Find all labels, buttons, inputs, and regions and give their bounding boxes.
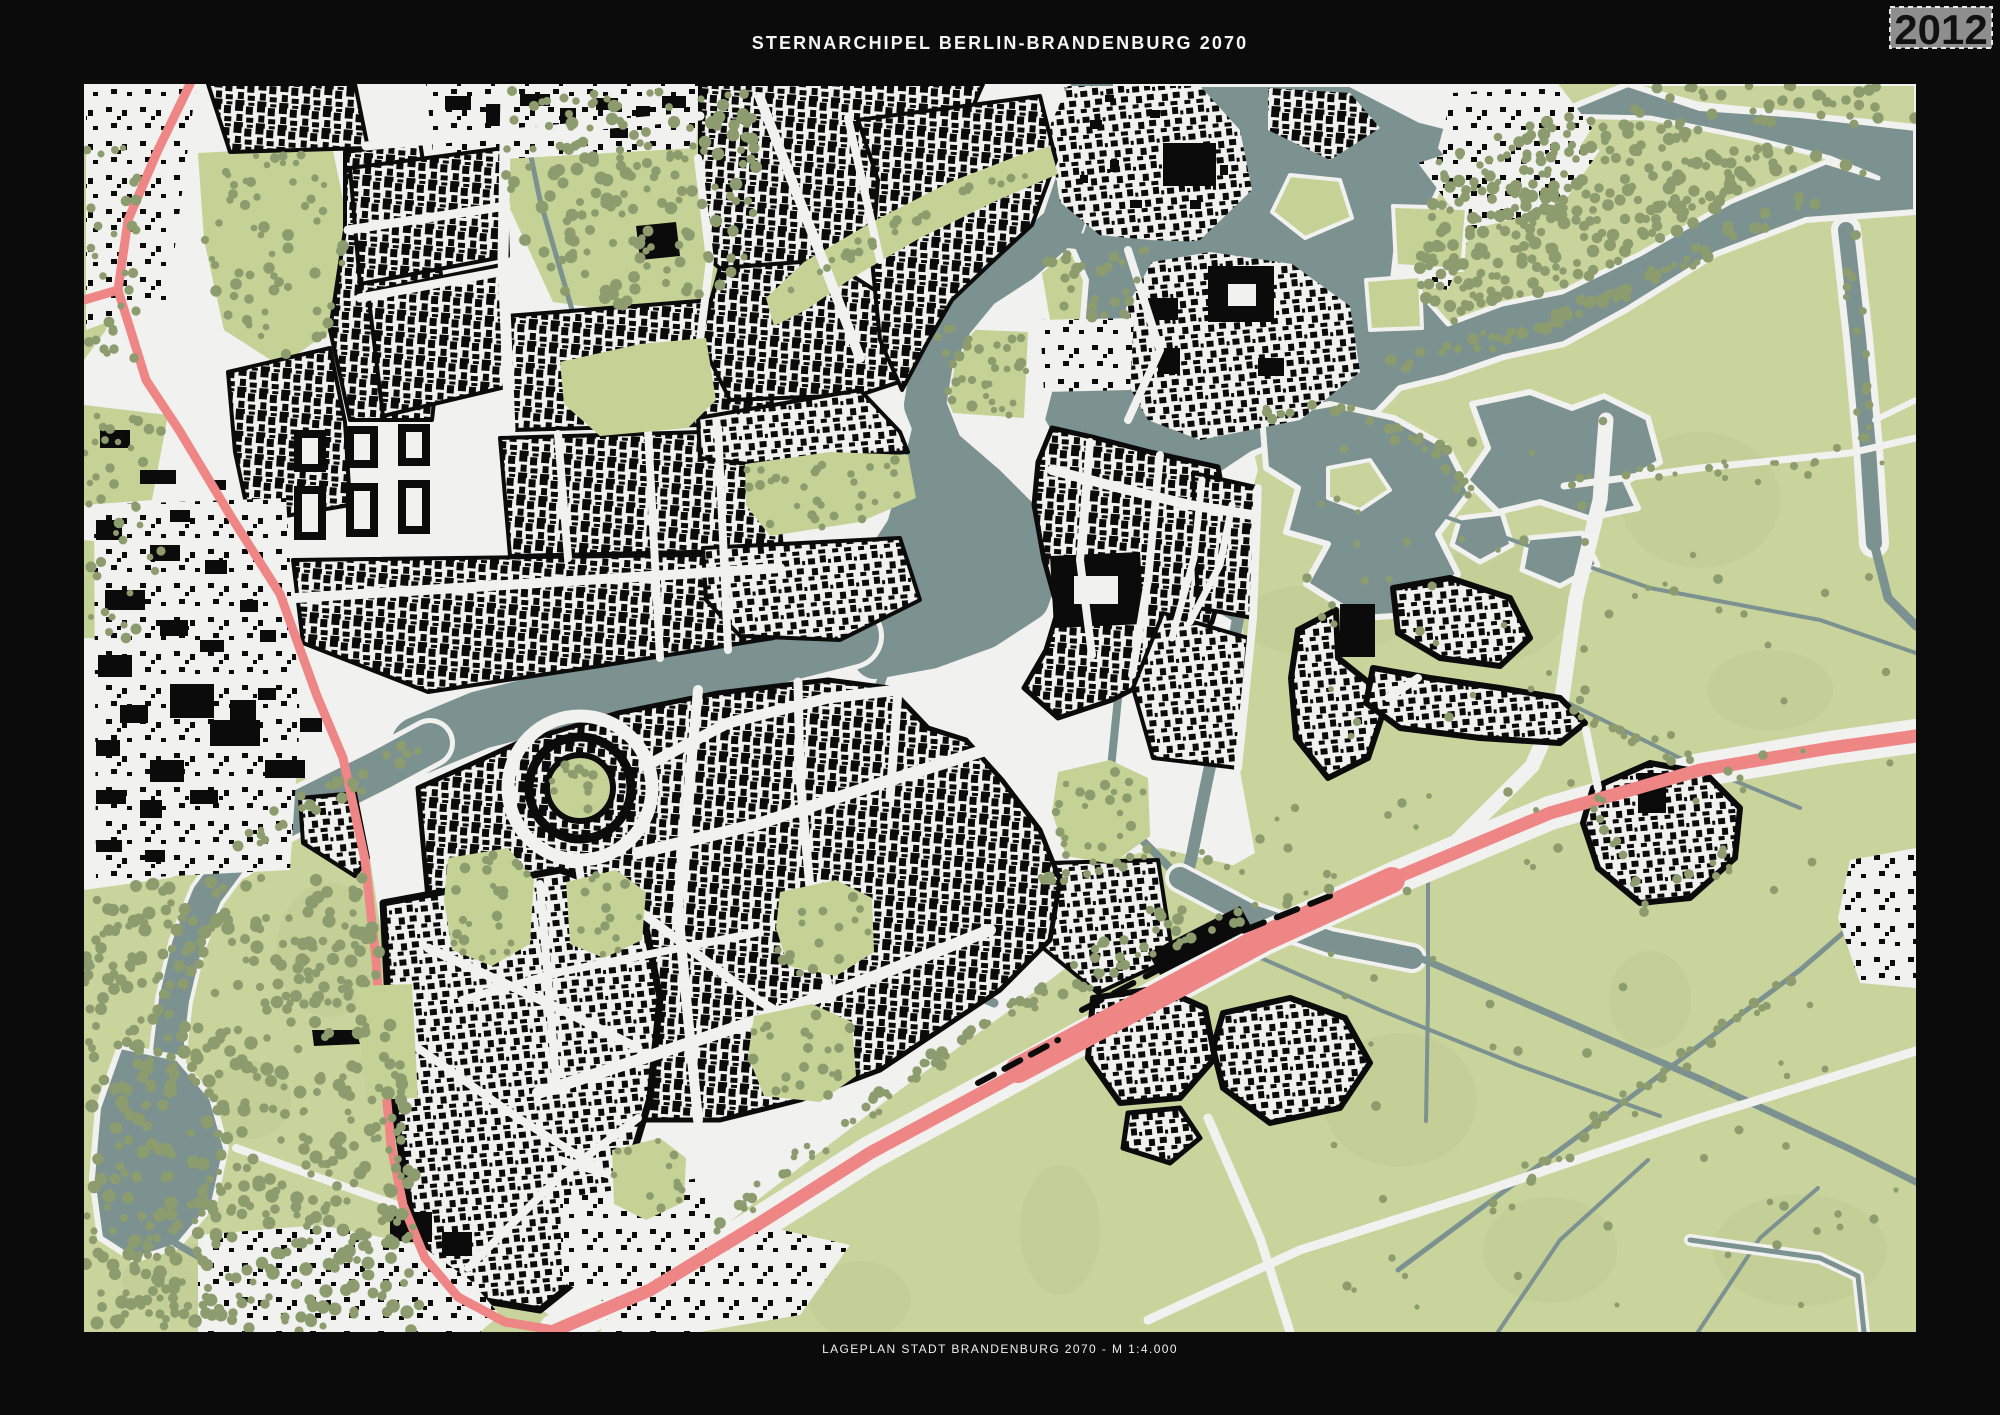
- svg-text:STERNARCHIPEL BERLIN-BRANDENBU: STERNARCHIPEL BERLIN-BRANDENBURG 2070: [752, 33, 1248, 53]
- svg-text:2012: 2012: [1894, 6, 1987, 53]
- svg-text:LAGEPLAN STADT BRANDENBURG 207: LAGEPLAN STADT BRANDENBURG 2070 - M 1:4.…: [822, 1342, 1178, 1356]
